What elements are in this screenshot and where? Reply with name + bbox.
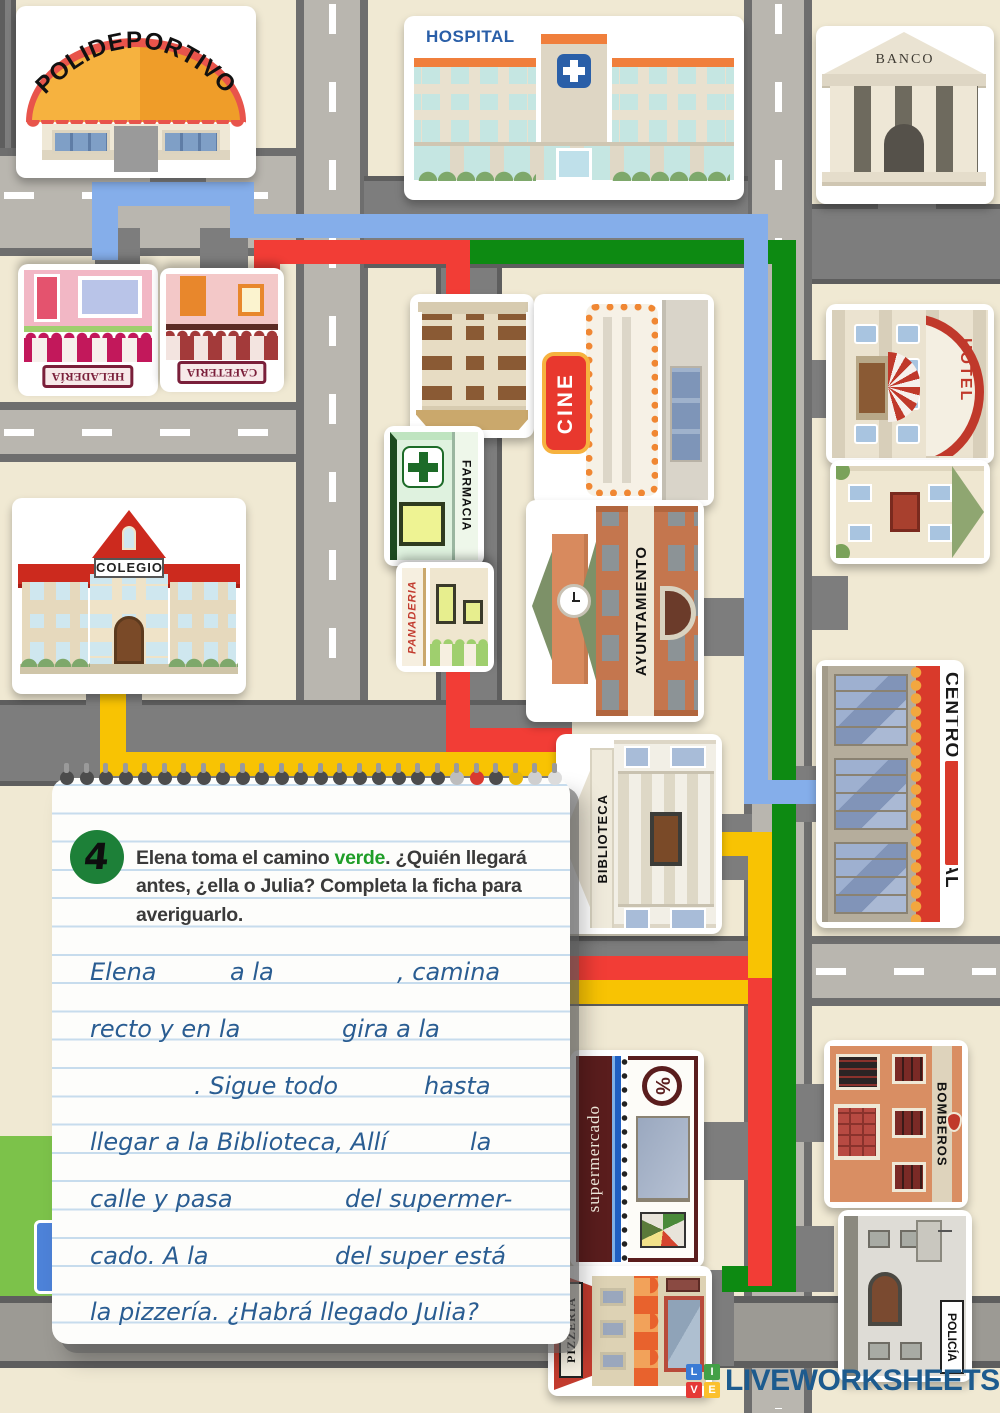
biblioteca-door bbox=[650, 812, 682, 866]
building-hotel: HOTEL bbox=[826, 304, 994, 464]
policia-tower bbox=[916, 1220, 942, 1262]
hw-text: calle y pasa bbox=[90, 1185, 233, 1213]
hospital-door bbox=[556, 148, 592, 180]
farmacia-sign: FARMACIA bbox=[452, 432, 478, 560]
hw-text: . Sigue todo bbox=[194, 1072, 338, 1100]
hw-text: cado. A la bbox=[90, 1242, 209, 1270]
cine-label: CINE bbox=[554, 372, 578, 434]
logo-tile-e: E bbox=[704, 1382, 720, 1398]
supermercado-sign-band: supermercado bbox=[576, 1056, 612, 1262]
bomberos-window bbox=[892, 1108, 926, 1138]
instruction-highlight-verde: verde bbox=[335, 847, 386, 869]
policia-antenna bbox=[938, 1230, 952, 1232]
polideportivo-window bbox=[162, 130, 220, 154]
ayuntamiento-tower-roof bbox=[532, 546, 554, 666]
hw-text: , camina bbox=[397, 958, 500, 986]
road-vertical-west bbox=[296, 0, 368, 706]
route-blue-v1 bbox=[744, 214, 768, 804]
driveway-house bbox=[812, 576, 848, 630]
apartments-wall bbox=[422, 310, 526, 410]
colegio-wing-left bbox=[22, 582, 88, 664]
policia-window bbox=[868, 1230, 890, 1248]
building-biblioteca: BIBLIOTECA bbox=[556, 734, 722, 934]
centro-comercial-glass bbox=[834, 674, 908, 746]
heladeria-window bbox=[78, 276, 142, 318]
route-red-v2 bbox=[748, 978, 772, 1286]
hotel-window bbox=[854, 424, 878, 444]
answer-line-4: llegar a la Biblioteca, Allí la bbox=[52, 1124, 570, 1158]
hw-text: recto y en la bbox=[90, 1015, 240, 1043]
colegio-gable-window bbox=[122, 526, 136, 550]
hw-text: llegar a la Biblioteca, Allí bbox=[90, 1128, 387, 1156]
answer-line-1: Elena a la , camina bbox=[52, 954, 570, 988]
answer-line-5: calle y pasa del supermer- bbox=[52, 1181, 570, 1215]
pizzeria-glass-door bbox=[664, 1296, 704, 1372]
route-yellow-h2 bbox=[556, 980, 772, 1004]
worksheet-notepad: 4 Elena toma el camino verde. ¿Quién lle… bbox=[52, 778, 570, 1344]
hw-text: del supermer- bbox=[345, 1185, 512, 1213]
supermercado-produce-poster bbox=[640, 1212, 686, 1248]
banco-door bbox=[884, 124, 924, 172]
route-red-h3 bbox=[556, 956, 748, 980]
instruction-pre: Elena toma el camino bbox=[136, 847, 335, 869]
exercise-number-badge: 4 bbox=[70, 830, 124, 884]
road-east-horizontal bbox=[812, 936, 1000, 1006]
pizzeria-window bbox=[600, 1288, 626, 1306]
bomberos-board bbox=[836, 1054, 880, 1090]
hospital-hedge bbox=[418, 168, 536, 181]
panaderia-window bbox=[463, 600, 483, 624]
building-ayuntamiento: AYUNTAMIENTO bbox=[526, 500, 704, 722]
centro-comercial-glass bbox=[834, 842, 908, 914]
biblioteca-label: BIBLIOTECA bbox=[595, 794, 610, 883]
bomberos-garage-door bbox=[834, 1104, 880, 1160]
building-supermercado: supermercado % bbox=[570, 1050, 704, 1268]
farmacia-window bbox=[399, 502, 445, 546]
supermercado-stripe bbox=[612, 1056, 621, 1262]
building-hospital: HOSPITAL bbox=[404, 16, 744, 200]
supermercado-dots bbox=[621, 1056, 628, 1262]
exercise-instruction: Elena toma el camino verde. ¿Quién llega… bbox=[136, 844, 564, 929]
biblioteca-sign: BIBLIOTECA bbox=[590, 748, 614, 928]
building-panaderia: PANADERIA bbox=[396, 562, 494, 672]
hotel-window bbox=[896, 324, 920, 344]
house-window bbox=[928, 524, 952, 542]
panaderia-awning bbox=[430, 644, 488, 666]
cine-marquee-lights bbox=[586, 304, 658, 496]
building-bomberos: BOMBEROS bbox=[824, 1040, 968, 1208]
exercise-number: 4 bbox=[82, 837, 111, 878]
policia-label: POLICÍA bbox=[945, 1313, 959, 1362]
logo-tile-i: I bbox=[704, 1364, 720, 1380]
polideportivo-door bbox=[114, 126, 158, 172]
colegio-hedge bbox=[168, 654, 238, 667]
liveworksheets-tiles-icon: L I V E bbox=[686, 1364, 720, 1398]
centro-comercial-awning bbox=[916, 666, 940, 922]
pizzeria-window bbox=[600, 1320, 626, 1338]
hospital-wing-left bbox=[414, 58, 536, 142]
route-red-h2 bbox=[446, 728, 572, 752]
building-policia: POLICÍA bbox=[838, 1210, 972, 1382]
svg-text:POLIDEPORTIVO: POLIDEPORTIVO bbox=[30, 27, 241, 99]
cafeteria-awning bbox=[166, 336, 278, 360]
hospital-tower bbox=[541, 34, 607, 144]
hw-text: gira a la bbox=[342, 1015, 440, 1043]
biblioteca-window bbox=[670, 746, 706, 768]
road-dashes bbox=[816, 968, 996, 975]
heladeria-door bbox=[34, 274, 60, 322]
liveworksheets-wordmark: LIVEWORKSHEETS bbox=[725, 1364, 1000, 1398]
cafeteria-door bbox=[180, 276, 206, 316]
hospital-cross-icon bbox=[557, 54, 591, 88]
heladeria-label: HELADERÍA bbox=[43, 365, 134, 388]
ayuntamiento-label: AYUNTAMIENTO bbox=[633, 546, 650, 676]
house-window bbox=[928, 484, 952, 502]
cine-glass bbox=[670, 366, 702, 462]
building-cine: CINE bbox=[534, 294, 714, 506]
building-cafeteria: CAFETERIA bbox=[160, 268, 284, 392]
road-dashes bbox=[329, 4, 336, 702]
building-banco: BANCO bbox=[816, 26, 994, 204]
colegio-hedge bbox=[20, 654, 90, 667]
answer-line-3: . Sigue todo hasta bbox=[52, 1068, 570, 1102]
colegio-roof-right bbox=[164, 564, 240, 584]
building-house bbox=[830, 460, 990, 564]
hw-text: a la bbox=[230, 958, 274, 986]
road-edge-top-left bbox=[0, 0, 16, 152]
hw-text: del super está bbox=[335, 1242, 506, 1270]
driveway-policia bbox=[790, 1226, 834, 1292]
hotel-label: HOTEL bbox=[956, 338, 974, 402]
policia-window bbox=[868, 1342, 890, 1360]
hw-text: la bbox=[470, 1128, 491, 1156]
bomberos-window bbox=[892, 1054, 926, 1084]
panaderia-door bbox=[436, 584, 456, 624]
supermercado-discount-icon: % bbox=[642, 1066, 682, 1106]
polideportivo-window bbox=[52, 130, 110, 154]
hospital-wing-right bbox=[612, 58, 734, 142]
farmacia-cross-icon bbox=[402, 446, 444, 488]
logo-tile-l: L bbox=[686, 1364, 702, 1380]
answer-line-7: la pizzería. ¿Habrá llegado Julia? bbox=[52, 1294, 570, 1328]
colegio-label: COLEGIO bbox=[94, 558, 164, 578]
colegio-door bbox=[114, 616, 144, 664]
answer-line-6: cado. A la del super está bbox=[52, 1238, 570, 1272]
hospital-label: HOSPITAL bbox=[418, 26, 523, 48]
notepad-spiral-binding bbox=[60, 771, 562, 787]
cafeteria-window bbox=[238, 284, 264, 316]
instruction-line3: averiguarlo. bbox=[136, 904, 243, 926]
route-green-v1 bbox=[772, 240, 796, 1292]
biblioteca-window bbox=[670, 908, 706, 928]
biblioteca-window bbox=[624, 746, 650, 768]
ayuntamiento-clock-icon bbox=[557, 584, 591, 618]
building-polideportivo: POLIDEPORTIVO bbox=[16, 6, 256, 178]
hospital-hedge bbox=[612, 168, 730, 181]
building-apartments bbox=[410, 294, 534, 438]
house-door bbox=[890, 492, 920, 532]
farmacia-label: FARMACIA bbox=[460, 460, 474, 531]
colegio-roof-left bbox=[18, 564, 94, 584]
colegio-wing-right bbox=[170, 582, 236, 664]
banco-entablature bbox=[822, 74, 986, 86]
pizzeria-awning bbox=[634, 1276, 658, 1386]
instruction-line2: antes, ¿ella o Julia? Completa la ficha … bbox=[136, 875, 522, 897]
banco-label: BANCO bbox=[822, 52, 988, 68]
biblioteca-window bbox=[624, 908, 650, 928]
pizzeria-top-window bbox=[666, 1278, 700, 1292]
route-red-h1 bbox=[254, 240, 468, 264]
instruction-post: . ¿Quién llegará bbox=[385, 847, 527, 869]
ayuntamiento-sign: AYUNTAMIENTO bbox=[628, 506, 654, 716]
hw-text: hasta bbox=[424, 1072, 491, 1100]
house-window bbox=[848, 524, 872, 542]
cafeteria-label: CAFETERIA bbox=[178, 361, 267, 384]
polideportivo-label: POLIDEPORTIVO bbox=[30, 27, 241, 99]
hw-text: la pizzería. ¿Habrá llegado Julia? bbox=[90, 1298, 479, 1326]
building-colegio: COLEGIO bbox=[12, 498, 246, 694]
hotel-window bbox=[896, 424, 920, 444]
pizzeria-window bbox=[600, 1352, 626, 1370]
panaderia-sign: PANADERIA bbox=[402, 568, 426, 666]
liveworksheets-logo[interactable]: L I V E LIVEWORKSHEETS bbox=[686, 1364, 1000, 1398]
heladeria-awning bbox=[24, 338, 152, 362]
supermercado-glass bbox=[636, 1116, 690, 1202]
route-blue-h2 bbox=[230, 214, 768, 238]
building-heladeria: HELADERÍA bbox=[18, 264, 158, 396]
road-west-horizontal bbox=[0, 402, 296, 462]
polideportivo-arc-label: POLIDEPORTIVO bbox=[22, 12, 250, 132]
cine-sign: CINE bbox=[542, 352, 590, 454]
panaderia-label: PANADERIA bbox=[407, 580, 419, 654]
house-window bbox=[848, 484, 872, 502]
policia-window bbox=[900, 1342, 922, 1360]
policia-sign: POLICÍA bbox=[940, 1300, 964, 1374]
centro-comercial-side-sign bbox=[942, 758, 958, 868]
hw-text: Elena bbox=[90, 958, 157, 986]
road-dashes bbox=[4, 429, 292, 436]
hotel-window bbox=[854, 324, 878, 344]
building-farmacia: FARMACIA bbox=[384, 426, 484, 566]
hotel-door bbox=[856, 360, 888, 416]
logo-tile-v: V bbox=[686, 1382, 702, 1398]
building-centro-comercial: CENTRO COMERCIAL bbox=[816, 660, 964, 928]
banco-steps bbox=[822, 172, 986, 186]
policia-door bbox=[868, 1272, 902, 1326]
centro-comercial-glass bbox=[834, 758, 908, 830]
bomberos-window bbox=[892, 1162, 926, 1192]
answer-line-2: recto y en la gira a la bbox=[52, 1011, 570, 1045]
supermercado-label: supermercado bbox=[584, 1105, 604, 1212]
